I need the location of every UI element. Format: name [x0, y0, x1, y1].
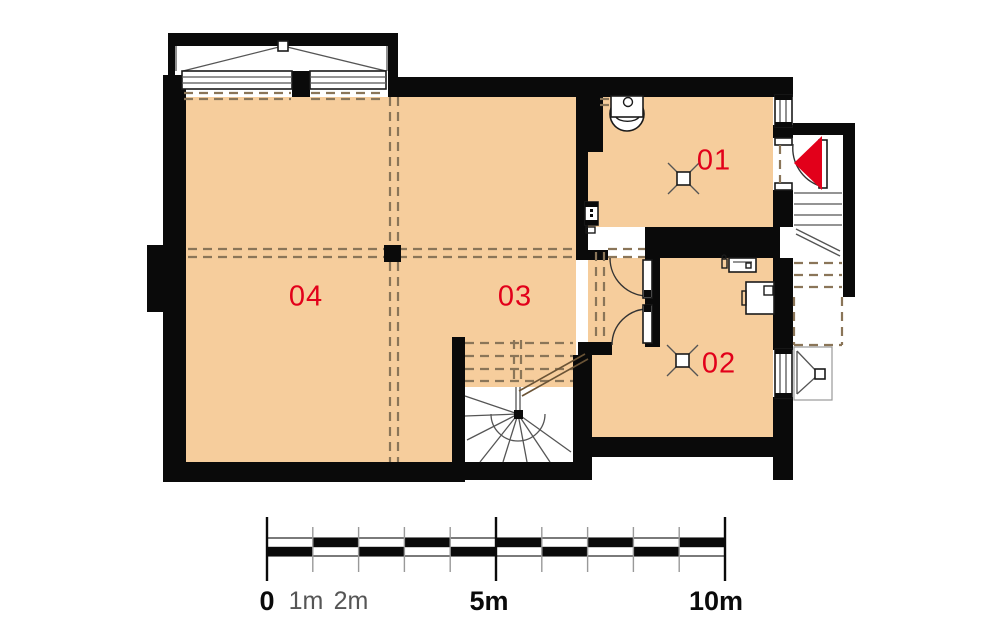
room-label-04: 04	[289, 281, 323, 314]
window-room01-right	[775, 95, 792, 127]
structural-post	[384, 245, 401, 262]
knee-wall-dashes	[188, 97, 645, 462]
room-label-02: 02	[702, 348, 736, 381]
scale-label-5m: 5m	[469, 586, 508, 617]
roof-triangle	[176, 41, 387, 71]
scale-bar	[267, 517, 725, 581]
door-room01	[610, 258, 652, 298]
light-icon-room02	[667, 345, 698, 376]
light-icon-room01	[668, 163, 699, 194]
scale-label-0: 0	[259, 586, 274, 617]
interior-winder-stairs	[465, 340, 588, 462]
plan-linework	[0, 0, 1000, 636]
room-label-03: 03	[498, 281, 532, 314]
bay-window	[775, 347, 832, 400]
toilet-icon	[610, 96, 644, 131]
sink-icon	[722, 255, 756, 272]
floor-plan-canvas: 04 03 01 02 0 1m 2m 5m 10m	[0, 0, 1000, 636]
dormer-window-left	[182, 71, 292, 99]
dormer-window-right	[310, 71, 386, 99]
exterior-stairs	[794, 193, 842, 345]
boiler-icon	[742, 282, 774, 314]
room-label-01: 01	[697, 145, 731, 178]
entrance-arrow-icon	[794, 136, 822, 190]
door-room02	[612, 305, 652, 345]
scale-label-10m: 10m	[689, 586, 743, 617]
radiator-icon	[585, 202, 598, 233]
scale-label-1m: 1m	[289, 587, 324, 616]
scale-label-2m: 2m	[334, 587, 369, 616]
